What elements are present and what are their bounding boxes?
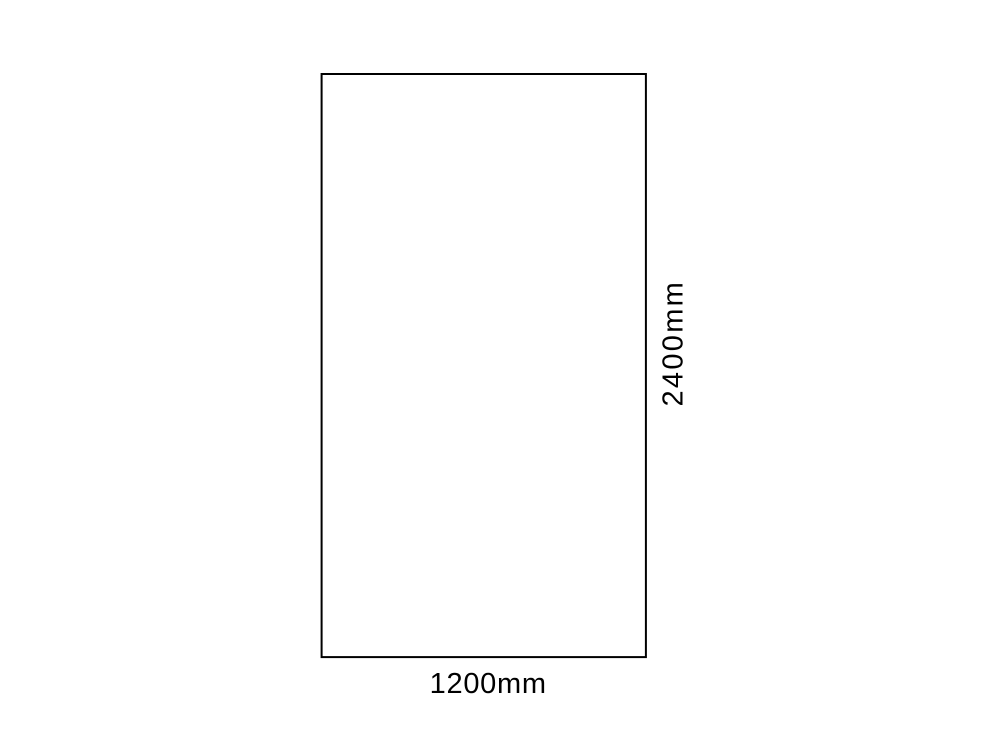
svg-text:2400mm: 2400mm [657, 280, 689, 407]
svg-text:1200mm: 1200mm [430, 668, 547, 700]
